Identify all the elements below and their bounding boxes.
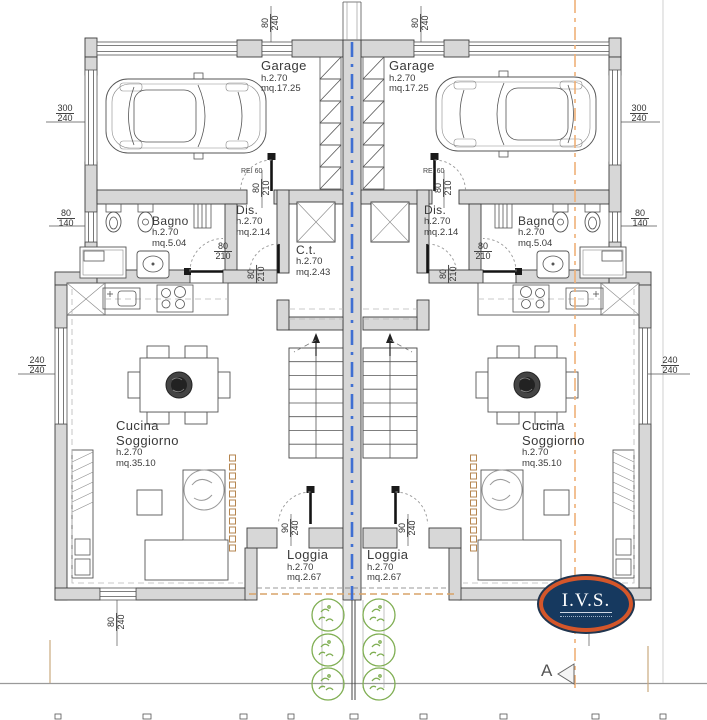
- shrubs: [312, 599, 395, 700]
- room-name: C.t.: [296, 244, 330, 257]
- room-name: Bagno: [518, 215, 555, 228]
- staircase-left: [289, 333, 343, 458]
- dim-height: 240: [28, 365, 45, 375]
- dim-width: 90: [398, 522, 407, 534]
- dim-width: 80: [247, 268, 256, 280]
- dim-height: 240: [630, 113, 647, 123]
- dim-height: 240: [408, 519, 418, 536]
- room-label-garage-left: Garage h.2.70 mq.17.25: [261, 59, 307, 95]
- dim-bagno-window-right: 80 140: [626, 209, 654, 229]
- dim-width: 80: [477, 242, 489, 251]
- dim-height: 210: [257, 265, 267, 282]
- car-left: [106, 73, 266, 159]
- room-label-cucina-left: Cucina Soggiorno h.2.70 mq.35.10: [116, 419, 179, 469]
- room-label-loggia-right: Loggia h.2.70 mq.2.67: [367, 548, 408, 584]
- room-area: mq.17.25: [261, 84, 307, 95]
- room-name: Loggia: [367, 548, 408, 563]
- sofa-right: [478, 450, 634, 580]
- dim-width: 90: [281, 522, 290, 534]
- company-logo-tagline: [560, 612, 612, 617]
- dim-height: 240: [271, 14, 281, 31]
- sofa-left: [72, 450, 228, 580]
- car-right: [436, 71, 596, 157]
- room-name: Loggia: [287, 548, 328, 563]
- dim-width: 240: [28, 356, 45, 365]
- room-name-line2: Soggiorno: [522, 434, 585, 449]
- dim-height: 210: [444, 179, 454, 196]
- walkway-lines: [322, 600, 384, 700]
- room-area: mq.2.14: [236, 228, 270, 239]
- dim-garage-door-right: 80 210: [434, 173, 454, 203]
- room-label-ct: C.t. h.2.70 mq.2.43: [296, 244, 330, 279]
- dining-table-left: [128, 346, 230, 424]
- dim-garage-window-right: 300 240: [623, 104, 655, 124]
- dim-width: 80: [411, 17, 420, 29]
- room-area: mq.2.67: [287, 573, 328, 584]
- dim-height: 210: [474, 251, 491, 261]
- dim-width: 80: [107, 616, 116, 628]
- dim-height: 140: [631, 218, 648, 228]
- dim-width: 80: [60, 209, 72, 218]
- room-name: Bagno: [152, 215, 189, 228]
- dim-height: 140: [57, 218, 74, 228]
- dim-height: 240: [56, 113, 73, 123]
- dim-bagno-window-left: 80 140: [52, 209, 80, 229]
- room-name: Garage: [261, 59, 307, 74]
- dim-height: 240: [421, 14, 431, 31]
- room-name-line1: Cucina: [522, 419, 585, 434]
- room-name-line1: Cucina: [116, 419, 179, 434]
- room-label-dis-left: Dis. h.2.70 mq.2.14: [236, 204, 270, 239]
- dim-bagno-door-right: 80 210: [469, 242, 497, 262]
- section-marker-triangle: [558, 664, 574, 684]
- room-area: mq.17.25: [389, 84, 435, 95]
- dim-bagno-door-left: 80 210: [209, 242, 237, 262]
- room-label-cucina-right: Cucina Soggiorno h.2.70 mq.35.10: [522, 419, 585, 469]
- room-label-bagno-left: Bagno h.2.70 mq.5.04: [152, 215, 189, 250]
- dim-width: 300: [630, 104, 647, 113]
- dim-width: 80: [439, 268, 448, 280]
- room-name: Garage: [389, 59, 435, 74]
- bathroom-left: [80, 204, 211, 278]
- radiator-right: [471, 455, 477, 551]
- kitchen-right: [478, 283, 639, 315]
- kitchen-left: [67, 283, 228, 315]
- room-area: mq.2.14: [424, 228, 458, 239]
- room-name: Dis.: [424, 204, 458, 217]
- room-area: mq.5.04: [152, 239, 189, 250]
- radiator-left: [230, 455, 236, 551]
- dim-height: 210: [449, 265, 459, 282]
- room-area: mq.2.43: [296, 268, 330, 279]
- bathroom-right: [495, 204, 626, 278]
- dim-width: 80: [217, 242, 229, 251]
- staircase-right: [363, 333, 417, 458]
- dim-garage-door-left: 80 210: [252, 173, 272, 203]
- dim-height: 210: [262, 179, 272, 196]
- dim-bottom-window-left: 80 240: [107, 607, 127, 637]
- room-label-garage-right: Garage h.2.70 mq.17.25: [389, 59, 435, 95]
- room-name: Dis.: [236, 204, 270, 217]
- dining-table-right: [476, 346, 578, 424]
- dim-width: 80: [261, 17, 270, 29]
- dim-living-window-left: 240 240: [21, 356, 53, 376]
- floor-plan-canvas: Garage h.2.70 mq.17.25 Garage h.2.70 mq.…: [0, 0, 707, 720]
- room-label-loggia-left: Loggia h.2.70 mq.2.67: [287, 548, 328, 584]
- section-marker-label: A: [541, 661, 552, 681]
- dim-width: 80: [634, 209, 646, 218]
- dim-width: 80: [434, 182, 443, 194]
- dim-loggia-door-right: 90 240: [398, 513, 418, 543]
- dim-width: 300: [56, 104, 73, 113]
- dim-hall-door-left: 80 210: [247, 259, 267, 289]
- dim-top-window-right: 80 240: [411, 8, 431, 38]
- room-label-bagno-right: Bagno h.2.70 mq.5.04: [518, 215, 555, 250]
- room-name-line2: Soggiorno: [116, 434, 179, 449]
- room-area: mq.35.10: [116, 459, 179, 470]
- room-area: mq.2.67: [367, 573, 408, 584]
- company-logo: I.V.S.: [539, 576, 633, 632]
- dim-height: 240: [291, 519, 301, 536]
- dim-width: 240: [661, 356, 678, 365]
- dim-height: 210: [214, 251, 231, 261]
- dim-hall-door-right: 80 210: [439, 259, 459, 289]
- dim-garage-window-left: 300 240: [49, 104, 81, 124]
- dim-living-window-right: 240 240: [654, 356, 686, 376]
- dim-loggia-door-left: 90 240: [281, 513, 301, 543]
- room-area: mq.5.04: [518, 239, 555, 250]
- clipped-bottom-ticks: [55, 714, 666, 719]
- room-label-dis-right: Dis. h.2.70 mq.2.14: [424, 204, 458, 239]
- room-area: mq.35.10: [522, 459, 585, 470]
- dim-height: 240: [117, 613, 127, 630]
- dim-top-window-left: 80 240: [261, 8, 281, 38]
- company-logo-text: I.V.S.: [562, 591, 610, 610]
- dim-width: 80: [252, 182, 261, 194]
- dim-height: 240: [661, 365, 678, 375]
